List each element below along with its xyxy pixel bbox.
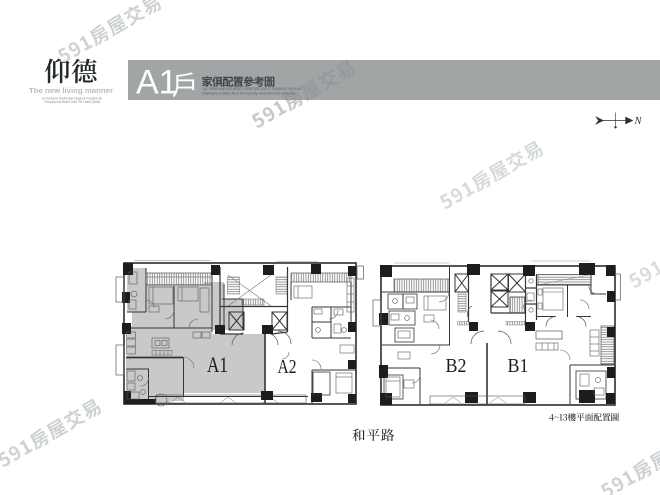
svg-text:The new living manner: The new living manner: [29, 88, 113, 95]
svg-text:N: N: [634, 116, 643, 127]
svg-text:A1: A1: [136, 64, 178, 102]
svg-text:B2: B2: [446, 355, 467, 377]
svg-text:A1: A1: [207, 352, 228, 377]
svg-text:B1: B1: [508, 355, 529, 377]
svg-text:A2: A2: [278, 356, 297, 378]
svg-text:Drawing for a better life of t: Drawing for a better life of the new cit…: [202, 91, 297, 96]
svg-text:Tranquility And Modern Taste T: Tranquility And Modern Taste The Classic…: [44, 100, 100, 104]
